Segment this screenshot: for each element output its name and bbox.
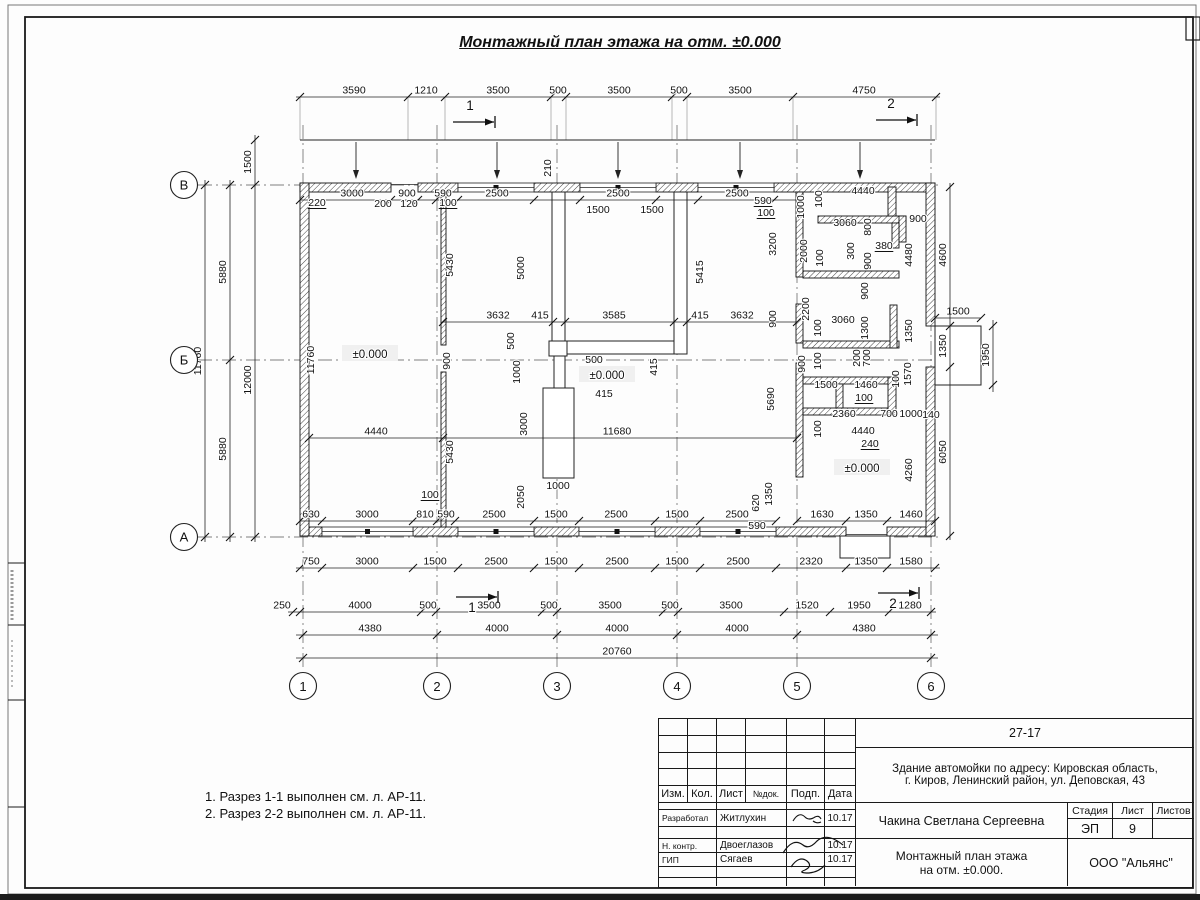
tb-cell — [717, 769, 746, 786]
tb-header-izm: Изм. — [659, 786, 688, 803]
dim-label: 900 — [796, 355, 808, 373]
dim-label: 100 — [813, 190, 825, 208]
dim-label: 590 — [754, 195, 772, 207]
dim-label: 1500 — [665, 556, 689, 568]
dim-label: 500 — [419, 600, 437, 612]
tb-role: ГИП — [659, 853, 717, 867]
dim-label: 900 — [767, 310, 779, 328]
tb-cell — [717, 878, 787, 886]
dim-label: 4440 — [851, 425, 875, 437]
dim-label: 1500 — [544, 509, 568, 521]
trench-outline — [554, 356, 565, 388]
tb-sheets-label: Листов — [1153, 803, 1194, 819]
dim-label: 2050 — [515, 485, 527, 509]
wall-segment — [656, 183, 698, 192]
dim-label: 120 — [400, 198, 418, 210]
dim-label: 900 — [441, 352, 453, 370]
dim-label: 590 — [748, 520, 766, 532]
dim-label: 100 — [757, 207, 775, 219]
tb-supervisor: Чакина Светлана Сергеевна — [856, 803, 1068, 839]
dim-label: 500 — [549, 85, 567, 97]
note-line: 1. Разрез 1-1 выполнен см. л. АР-11. — [205, 788, 426, 805]
tb-cell — [688, 769, 717, 786]
wall-segment — [803, 341, 899, 348]
dim-label: 1500 — [665, 509, 689, 521]
dim-label: 800 — [862, 218, 874, 236]
tb-cell — [717, 803, 787, 810]
dim-label: 3632 — [486, 310, 510, 322]
dim-label: 900 — [859, 282, 871, 300]
dim-label: 2500 — [485, 188, 509, 200]
tb-date: 10.17 — [825, 853, 856, 867]
dim-label: 1350 — [763, 482, 775, 506]
dim-label: 4000 — [725, 623, 749, 635]
dim-label: 1570 — [902, 362, 914, 386]
tb-cell — [787, 769, 825, 786]
dim-label: 1500 — [544, 556, 568, 568]
dim-label: 1000 — [899, 408, 923, 420]
dim-label: 100 — [439, 197, 457, 209]
wall-segment — [899, 216, 906, 242]
tb-header-ndok: №док. — [746, 786, 787, 803]
dim-label: 2360 — [832, 408, 856, 420]
dim-label: 4000 — [485, 623, 509, 635]
tb-name: Двоеглазов — [717, 839, 787, 853]
tb-cell — [825, 867, 856, 878]
dim-label: 630 — [302, 509, 320, 521]
dim-label: 2200 — [800, 297, 812, 321]
axis-label: 2 — [433, 679, 440, 694]
tb-cell — [825, 719, 856, 736]
wall-segment — [534, 183, 580, 192]
dim-label: 11760 — [305, 346, 317, 375]
dim-label: 300 — [845, 242, 857, 260]
canopy-arrow-head — [353, 170, 359, 179]
tb-cell — [746, 719, 787, 736]
tb-cell — [688, 719, 717, 736]
dim-label: 4750 — [852, 85, 876, 97]
wall-segment — [534, 527, 579, 536]
tb-date: 10.17 — [825, 810, 856, 827]
tb-stage-label: Стадия — [1068, 803, 1113, 819]
wall-segment — [413, 527, 458, 536]
dim-label: 750 — [302, 556, 320, 568]
left-margin-stamps — [8, 563, 25, 807]
dim-label: 590 — [437, 509, 455, 521]
tb-sheets-value — [1153, 819, 1194, 839]
wall-segment — [803, 271, 899, 278]
canopy-arrow-head — [737, 170, 743, 179]
tb-cell — [659, 803, 717, 810]
section-label: 2 — [887, 96, 895, 111]
dim-label: 100 — [814, 249, 826, 267]
dim-label: 1350 — [903, 319, 915, 343]
dim-label: 700 — [861, 349, 873, 367]
dim-label: 415 — [531, 310, 549, 322]
dim-label: 250 — [273, 600, 291, 612]
dim-label: 100 — [855, 392, 873, 404]
dim-label: 3590 — [342, 85, 366, 97]
dim-label: 20760 — [602, 646, 631, 658]
window-center-mark — [736, 529, 741, 534]
tb-cell — [825, 827, 856, 839]
dim-label: 4600 — [937, 243, 949, 267]
tb-object-line2: г. Киров, Ленинский район, ул. Деповская… — [905, 775, 1145, 787]
axis-label: Б — [180, 353, 189, 368]
dim-label: 4380 — [852, 623, 876, 635]
tb-cell — [787, 736, 825, 753]
dim-label: 220 — [308, 197, 326, 209]
dim-label: 2320 — [799, 556, 823, 568]
dim-label: 1500 — [423, 556, 447, 568]
tb-drawing-name-line1: Монтажный план этажа — [896, 849, 1028, 863]
dim-label: 3500 — [728, 85, 752, 97]
tb-cell — [787, 867, 825, 878]
note-line: 2. Разрез 2-2 выполнен см. л. АР-11. — [205, 805, 426, 822]
dim-label: 5880 — [217, 437, 229, 461]
tb-object: Здание автомойки по адресу: Кировская об… — [856, 748, 1194, 803]
dim-label: 1000 — [546, 480, 570, 492]
dim-label: 700 — [880, 408, 898, 420]
tb-signature-cell — [787, 839, 825, 853]
dim-label: 1000 — [511, 360, 523, 384]
tb-drawing-name: Монтажный план этажа на отм. ±0.000. — [856, 839, 1068, 886]
notes: 1. Разрез 1-1 выполнен см. л. АР-11. 2. … — [205, 788, 426, 822]
dim-label: 3500 — [598, 600, 622, 612]
dim-label: 240 — [861, 438, 879, 450]
section-arrow — [909, 590, 918, 597]
wall-segment — [655, 527, 700, 536]
tb-cell — [787, 753, 825, 769]
dim-label: 4440 — [851, 185, 875, 197]
dim-label: 200 — [374, 198, 392, 210]
dim-label: 100 — [812, 352, 824, 370]
dim-label: 1520 — [795, 600, 819, 612]
tb-cell — [688, 736, 717, 753]
dim-label: 1350 — [854, 509, 878, 521]
dim-label: 1580 — [899, 556, 923, 568]
tb-object-line1: Здание автомойки по адресу: Кировская об… — [892, 763, 1158, 775]
tb-cell — [746, 769, 787, 786]
wall-segment — [892, 223, 899, 248]
dim-label: 2000 — [798, 239, 810, 263]
wall-segment — [796, 363, 803, 477]
dim-label: 810 — [416, 509, 434, 521]
tb-cell — [688, 753, 717, 769]
tb-cell — [825, 736, 856, 753]
tb-cell — [659, 827, 717, 839]
tb-role: Н. контр. — [659, 839, 717, 853]
dim-label: 1460 — [899, 509, 923, 521]
dim-label: 2500 — [725, 509, 749, 521]
dim-label: 500 — [505, 332, 517, 350]
level-badge: ±0.000 — [589, 370, 624, 382]
dim-label: 4000 — [605, 623, 629, 635]
tb-company: ООО "Альянс" — [1068, 839, 1194, 886]
dim-label: 1500 — [640, 204, 664, 216]
tb-cell — [746, 736, 787, 753]
tb-cell — [825, 769, 856, 786]
tb-cell — [717, 736, 746, 753]
canopy-arrows — [353, 142, 863, 179]
canopy-arrow-head — [857, 170, 863, 179]
axis-label: 3 — [553, 679, 560, 694]
dim-label: 1460 — [854, 379, 878, 391]
tb-cell — [787, 719, 825, 736]
tb-cell — [825, 753, 856, 769]
tb-cell — [659, 753, 688, 769]
tb-cell — [787, 827, 825, 839]
window-center-mark — [615, 529, 620, 534]
dim-label: 2500 — [484, 556, 508, 568]
wall-segment — [926, 367, 935, 536]
tb-date: 10.17 — [825, 839, 856, 853]
tb-drawing-name-line2: на отм. ±0.000. — [920, 863, 1003, 877]
dim-label: 500 — [670, 85, 688, 97]
axis-label: А — [180, 530, 189, 545]
tb-cell — [825, 878, 856, 886]
dim-label: 1950 — [980, 343, 992, 367]
dim-label: 4480 — [903, 243, 915, 267]
axis-label: 1 — [299, 679, 306, 694]
section-arrow — [907, 117, 916, 124]
dim-label: 1350 — [937, 334, 949, 358]
section-label: 1 — [468, 600, 476, 615]
tb-cell — [717, 867, 787, 878]
dim-label: 5690 — [765, 387, 777, 411]
dim-label: 415 — [648, 358, 660, 376]
section-label: 1 — [466, 98, 474, 113]
dim-label: 2500 — [725, 188, 749, 200]
dim-label: 5430 — [444, 253, 456, 277]
dim-label: 1350 — [854, 556, 878, 568]
dim-label: 1630 — [810, 509, 834, 521]
level-badge: ±0.000 — [352, 349, 387, 361]
dim-label: 3585 — [602, 310, 626, 322]
dim-label: 2500 — [604, 509, 628, 521]
window-center-mark — [365, 529, 370, 534]
wall-segment — [776, 527, 846, 536]
tb-signature-cell — [787, 853, 825, 867]
dim-label: 140 — [922, 409, 940, 421]
tb-role: Разработал — [659, 810, 717, 827]
canopy-arrow-head — [615, 170, 621, 179]
dim-label: 100 — [421, 489, 439, 501]
dim-label: 4440 — [364, 426, 388, 438]
dim-label: 380 — [875, 240, 893, 252]
tb-header-podp: Подп. — [787, 786, 825, 803]
dim-label: 900 — [909, 213, 927, 225]
dim-label: 3500 — [486, 85, 510, 97]
tb-cell — [659, 867, 717, 878]
trench-outline — [552, 192, 565, 341]
dim-label: 3500 — [719, 600, 743, 612]
tb-cell — [659, 769, 688, 786]
trench-outline — [567, 341, 674, 354]
trench-outline — [674, 192, 687, 354]
dim-label: 5000 — [515, 256, 527, 280]
dim-label: 500 — [540, 600, 558, 612]
dim-label: 1210 — [414, 85, 438, 97]
dim-label: 3000 — [355, 556, 379, 568]
scan-edge — [0, 894, 1200, 900]
tb-sheet-value: 9 — [1113, 819, 1153, 839]
section-label: 2 — [889, 596, 897, 611]
tb-cell — [787, 803, 825, 810]
tb-header-kol: Кол. — [688, 786, 717, 803]
tb-cell — [659, 878, 717, 886]
canopy-arrow-head — [494, 170, 500, 179]
dim-label: 900 — [862, 252, 874, 270]
dim-label: 1500 — [586, 204, 610, 216]
dim-label: 415 — [691, 310, 709, 322]
dim-label: 4000 — [348, 600, 372, 612]
dim-label: 100 — [812, 319, 824, 337]
dim-label: 5415 — [694, 260, 706, 284]
title-block: Изм. Кол. Лист №док. Подп. Дата Разработ… — [658, 718, 1193, 888]
dim-label: 415 — [595, 388, 613, 400]
dim-label: 210 — [542, 159, 554, 177]
dim-label: 5430 — [444, 440, 456, 464]
dim-label: 5880 — [217, 260, 229, 284]
tb-name: Житлухин — [717, 810, 787, 827]
tb-name: Сягаев — [717, 853, 787, 867]
axis-label: В — [180, 178, 189, 193]
level-badge: ±0.000 — [844, 463, 879, 475]
tb-sheet-label: Лист — [1113, 803, 1153, 819]
dim-label: 1280 — [898, 600, 922, 612]
wall-segment — [888, 187, 896, 216]
tb-stage-value: ЭП — [1068, 819, 1113, 839]
dim-label: 3000 — [340, 188, 364, 200]
tb-cell — [659, 719, 688, 736]
dim-label: 100 — [890, 370, 902, 388]
dim-label: 3500 — [477, 600, 501, 612]
tb-cell — [746, 753, 787, 769]
axis-label: 4 — [673, 679, 680, 694]
dim-label: 2500 — [482, 509, 506, 521]
window-center-mark — [494, 529, 499, 534]
dim-label: 100 — [812, 420, 824, 438]
tb-doc-number: 27-17 — [856, 719, 1194, 748]
dim-label: 3000 — [355, 509, 379, 521]
page-title: Монтажный план этажа на отм. ±0.000 — [380, 34, 860, 52]
tb-signature-cell — [787, 810, 825, 827]
dim-label: 1950 — [847, 600, 871, 612]
dim-label: 12000 — [242, 365, 254, 394]
axis-label: 6 — [927, 679, 934, 694]
dim-label: 2500 — [726, 556, 750, 568]
dim-label: 500 — [585, 354, 603, 366]
section-arrow — [485, 119, 494, 126]
wall-segment — [890, 305, 897, 348]
wall-segment — [926, 183, 935, 326]
dim-label: 3632 — [730, 310, 754, 322]
dim-label: 620 — [750, 494, 762, 512]
dim-label: 2500 — [605, 556, 629, 568]
trench-outline — [543, 388, 574, 478]
tb-header-data: Дата — [825, 786, 856, 803]
tb-cell — [717, 827, 787, 839]
dim-label: 2500 — [606, 188, 630, 200]
dim-label: 4260 — [903, 458, 915, 482]
axis-label: 5 — [793, 679, 800, 694]
dim-label: 11680 — [603, 426, 632, 438]
dim-label: 1500 — [814, 379, 838, 391]
dim-label: 3200 — [767, 232, 779, 256]
tb-header-list: Лист — [717, 786, 746, 803]
drawing-sheet: { "sheet_title": "Монтажный план этажа н… — [0, 0, 1200, 900]
tb-cell — [659, 736, 688, 753]
dim-label: 4380 — [358, 623, 382, 635]
tb-cell — [717, 719, 746, 736]
tb-cell — [825, 803, 856, 810]
dim-label: 1500 — [242, 150, 254, 174]
tb-cell — [787, 878, 825, 886]
dim-label: 3000 — [518, 412, 530, 436]
dim-label: 6050 — [937, 440, 949, 464]
dim-label: 3060 — [833, 217, 857, 229]
tb-cell — [717, 753, 746, 769]
dim-label: 1300 — [859, 316, 871, 340]
dim-label: 500 — [661, 600, 679, 612]
dim-label: 3500 — [607, 85, 631, 97]
dim-label: 3060 — [831, 314, 855, 326]
dim-label: 1000 — [795, 195, 807, 219]
trench-outline — [549, 341, 567, 356]
